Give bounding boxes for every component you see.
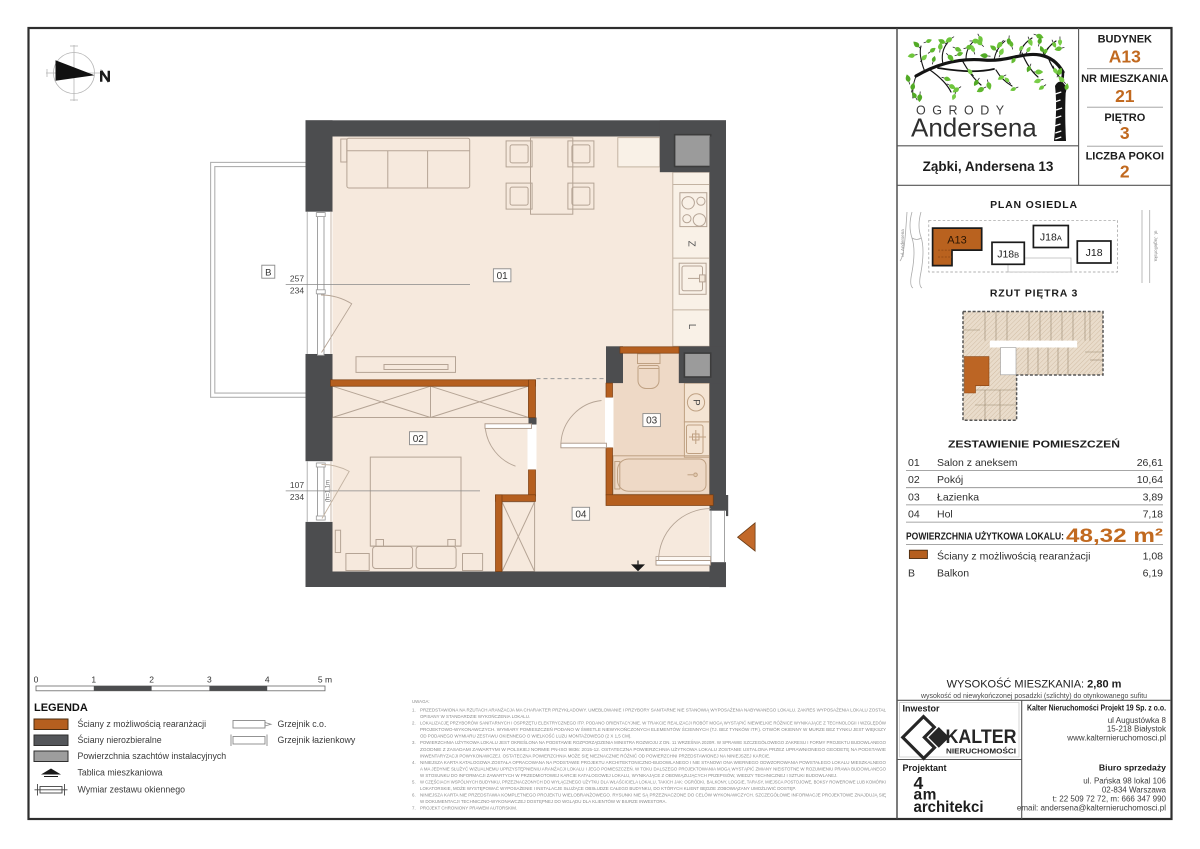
svg-text:Hol: Hol: [937, 509, 953, 521]
svg-text:234: 234: [290, 492, 304, 502]
svg-text:1: 1: [91, 675, 96, 685]
svg-text:Z: Z: [685, 241, 696, 247]
svg-text:PIĘTRO: PIĘTRO: [1104, 112, 1145, 124]
svg-text:48,32 m²: 48,32 m²: [1066, 525, 1164, 547]
svg-text:6.: 6.: [412, 793, 416, 798]
svg-text:ZGODNIE Z ZASADAMI ZAWARTYMI W: ZGODNIE Z ZASADAMI ZAWARTYMI W POLSKIEJ …: [420, 747, 886, 752]
svg-text:PRZEDSTAWIONA NA RZUTACH ARANŻ: PRZEDSTAWIONA NA RZUTACH ARANŻACJA MA CH…: [420, 708, 887, 713]
svg-text:02: 02: [413, 434, 425, 445]
svg-text:Ściany z możliwością rearanżac: Ściany z możliwością rearanżacji: [78, 718, 207, 729]
svg-text:Pokój: Pokój: [937, 474, 963, 486]
svg-text:Grzejnik c.o.: Grzejnik c.o.: [278, 719, 327, 729]
svg-text:04: 04: [908, 509, 920, 521]
svg-text:2.: 2.: [412, 721, 416, 726]
svg-text:Powierzchnia szachtów instalac: Powierzchnia szachtów instalacyjnych: [78, 751, 227, 761]
svg-text:10,64: 10,64: [1137, 474, 1163, 486]
svg-text:21: 21: [1115, 86, 1135, 106]
svg-text:WYSOKOŚĆ MIESZKANIA: 2,80 m: WYSOKOŚĆ MIESZKANIA: 2,80 m: [947, 678, 1122, 691]
svg-text:257: 257: [290, 274, 304, 284]
svg-text:Balkon: Balkon: [937, 568, 969, 580]
svg-text:A MA JEDYNIE SŁUŻYĆ WIZUALNEMU: A MA JEDYNIE SŁUŻYĆ WIZUALNEMU UPRZYSTĘP…: [420, 766, 887, 771]
svg-text:5.: 5.: [412, 780, 416, 785]
svg-text:4: 4: [265, 675, 270, 685]
svg-text:ul. Andersena: ul. Andersena: [900, 229, 905, 257]
svg-text:Kalter Nieruchomości Projekt 1: Kalter Nieruchomości Projekt 19 Sp. z o.…: [1027, 703, 1166, 713]
svg-text:1.: 1.: [412, 708, 416, 713]
svg-text:Biuro sprzedaży: Biuro sprzedaży: [1099, 763, 1166, 773]
svg-text:J18B: J18B: [997, 248, 1019, 260]
svg-text:01: 01: [908, 457, 920, 469]
svg-text:PROJEKTOWO-WYKONAWCZYCH. WYMIA: PROJEKTOWO-WYKONAWCZYCH. WYMIARY POMIESZ…: [420, 727, 886, 732]
svg-text:W CZĘŚCIACH WSPÓLNYCH BUDYNKU,: W CZĘŚCIACH WSPÓLNYCH BUDYNKU, PRZEZNACZ…: [420, 780, 886, 785]
svg-text:0: 0: [34, 675, 39, 685]
svg-text:B: B: [908, 568, 915, 580]
svg-text:PLAN OSIEDLA: PLAN OSIEDLA: [990, 199, 1078, 211]
svg-text:L: L: [686, 324, 697, 330]
svg-text:(h=1,1m: (h=1,1m: [326, 480, 332, 502]
svg-text:POWIERZCHNIA UŻYTKOWA LOKALU J: POWIERZCHNIA UŻYTKOWA LOKALU JEST OKREŚL…: [420, 740, 887, 745]
svg-text:Ściany z możliwością rearanżac: Ściany z możliwością rearanżacji: [937, 550, 1090, 563]
svg-text:03: 03: [646, 416, 658, 427]
svg-text:3.: 3.: [412, 740, 416, 745]
svg-text:OPISANY W STANDARDZIE WYKOŃCZE: OPISANY W STANDARDZIE WYKOŃCZENIA LOKALU…: [420, 714, 530, 719]
svg-text:wysokość od niewykończonej pos: wysokość od niewykończonej posadzki (szl…: [920, 693, 1147, 700]
svg-text:02: 02: [908, 474, 920, 486]
svg-text:15-218 Białystok: 15-218 Białystok: [1107, 725, 1167, 734]
svg-text:UWAGA:: UWAGA:: [412, 699, 430, 704]
svg-text:OD PODANEGO WYMIARU ZESTAWU OK: OD PODANEGO WYMIARU ZESTAWU OKIENNEGO O …: [420, 734, 631, 739]
svg-text:t: 22 509 72 72, m: 666 347 99: t: 22 509 72 72, m: 666 347 990: [1053, 795, 1167, 804]
svg-text:NINIEJSZA KARTA NIE PRZEDSTAWI: NINIEJSZA KARTA NIE PRZEDSTAWIA KOMPLETN…: [420, 793, 886, 798]
svg-text:architekci: architekci: [914, 799, 984, 816]
svg-text:Salon z aneksem: Salon z aneksem: [937, 457, 1018, 469]
svg-text:3: 3: [207, 675, 212, 685]
svg-text:Projektant: Projektant: [903, 763, 947, 773]
svg-text:LEGENDA: LEGENDA: [34, 702, 88, 714]
svg-text:LOKATORSKIE, MOŻE WYSTĘPOWAĆ W: LOKATORSKIE, MOŻE WYSTĘPOWAĆ WYPOSAŻENIE…: [420, 786, 796, 791]
svg-text:Andersena: Andersena: [911, 113, 1037, 143]
svg-text:ul. Pańska 98 lokal 106: ul. Pańska 98 lokal 106: [1083, 777, 1166, 786]
svg-text:NIERUCHOMOŚCI: NIERUCHOMOŚCI: [946, 747, 1016, 756]
svg-text:PROJEKT CHRONIONY PRAWEM AUTOR: PROJEKT CHRONIONY PRAWEM AUTORSKIM.: [420, 806, 517, 811]
svg-text:3,89: 3,89: [1143, 491, 1164, 503]
svg-text:A13: A13: [947, 235, 967, 247]
svg-text:Ząbki, Andersena 13: Ząbki, Andersena 13: [923, 159, 1054, 174]
svg-text:W DOKUMENTACJI TECHNICZNO-WYKO: W DOKUMENTACJI TECHNICZNO-WYKONAWCZEJ DO…: [420, 799, 667, 804]
svg-text:INWENTARYZACJI POWYKONAWCZEJ.: INWENTARYZACJI POWYKONAWCZEJ. OSTATECZNA…: [420, 753, 770, 758]
svg-text:NINIEJSZA KARTA KATALOGOWA ZOS: NINIEJSZA KARTA KATALOGOWA ZOSTAŁA OPRAC…: [420, 760, 887, 765]
svg-text:NR MIESZKANIA: NR MIESZKANIA: [1081, 73, 1168, 85]
svg-text:J18A: J18A: [1040, 232, 1062, 244]
svg-text:email: andersena@kalternieruch: email: andersena@kalternieruchomosci.pl: [1017, 804, 1166, 813]
svg-text:LOKALIZACJĘ PRZYBORÓW SANITARN: LOKALIZACJĘ PRZYBORÓW SANITARNYCH I OSPR…: [420, 721, 887, 726]
svg-text:POWIERZCHNIA UŻYTKOWA LOKALU:: POWIERZCHNIA UŻYTKOWA LOKALU:: [906, 530, 1064, 543]
svg-text:B: B: [265, 267, 271, 278]
svg-text:03: 03: [908, 491, 920, 503]
svg-text:234: 234: [290, 286, 304, 296]
svg-text:04: 04: [575, 509, 587, 520]
svg-text:4.: 4.: [412, 760, 416, 765]
svg-text:1,08: 1,08: [1143, 551, 1164, 563]
svg-text:A13: A13: [1109, 46, 1141, 66]
svg-text:Inwestor: Inwestor: [903, 704, 941, 714]
svg-text:ZESTAWIENIE POMIESZCZEŃ: ZESTAWIENIE POMIESZCZEŃ: [948, 438, 1120, 451]
svg-text:ul. Jagiellońska: ul. Jagiellońska: [1154, 231, 1159, 262]
svg-text:7,18: 7,18: [1143, 509, 1164, 521]
svg-text:2: 2: [149, 675, 154, 685]
svg-text:Tablica mieszkaniowa: Tablica mieszkaniowa: [78, 768, 163, 778]
svg-text:P: P: [690, 399, 701, 405]
svg-text:26,61: 26,61: [1137, 457, 1163, 469]
svg-text:6,19: 6,19: [1143, 568, 1164, 580]
svg-text:Grzejnik łazienkowy: Grzejnik łazienkowy: [278, 735, 356, 745]
svg-text:J18: J18: [1086, 247, 1103, 259]
svg-text:107: 107: [290, 480, 304, 490]
svg-text:Ściany nierozbieralne: Ściany nierozbieralne: [78, 734, 162, 745]
svg-text:7.: 7.: [412, 806, 416, 811]
svg-text:01: 01: [497, 271, 509, 282]
svg-text:2: 2: [1120, 161, 1130, 181]
svg-text:BUDYNEK: BUDYNEK: [1098, 34, 1152, 46]
svg-text:W STOSUNKU DO INFORMACJI ZAWAR: W STOSUNKU DO INFORMACJI ZAWARTYCH W PRZ…: [420, 773, 837, 778]
svg-text:Wymiar zestawu okiennego: Wymiar zestawu okiennego: [78, 785, 186, 795]
svg-text:5 m: 5 m: [318, 675, 332, 685]
svg-text:www.kalternieruchomosci.pl: www.kalternieruchomosci.pl: [1066, 734, 1166, 743]
svg-text:Łazienka: Łazienka: [937, 491, 979, 503]
svg-text:02-834 Warszawa: 02-834 Warszawa: [1102, 786, 1167, 795]
svg-text:3: 3: [1120, 123, 1130, 143]
svg-text:KALTER: KALTER: [946, 727, 1017, 748]
svg-text:RZUT PIĘTRA 3: RZUT PIĘTRA 3: [990, 288, 1078, 300]
